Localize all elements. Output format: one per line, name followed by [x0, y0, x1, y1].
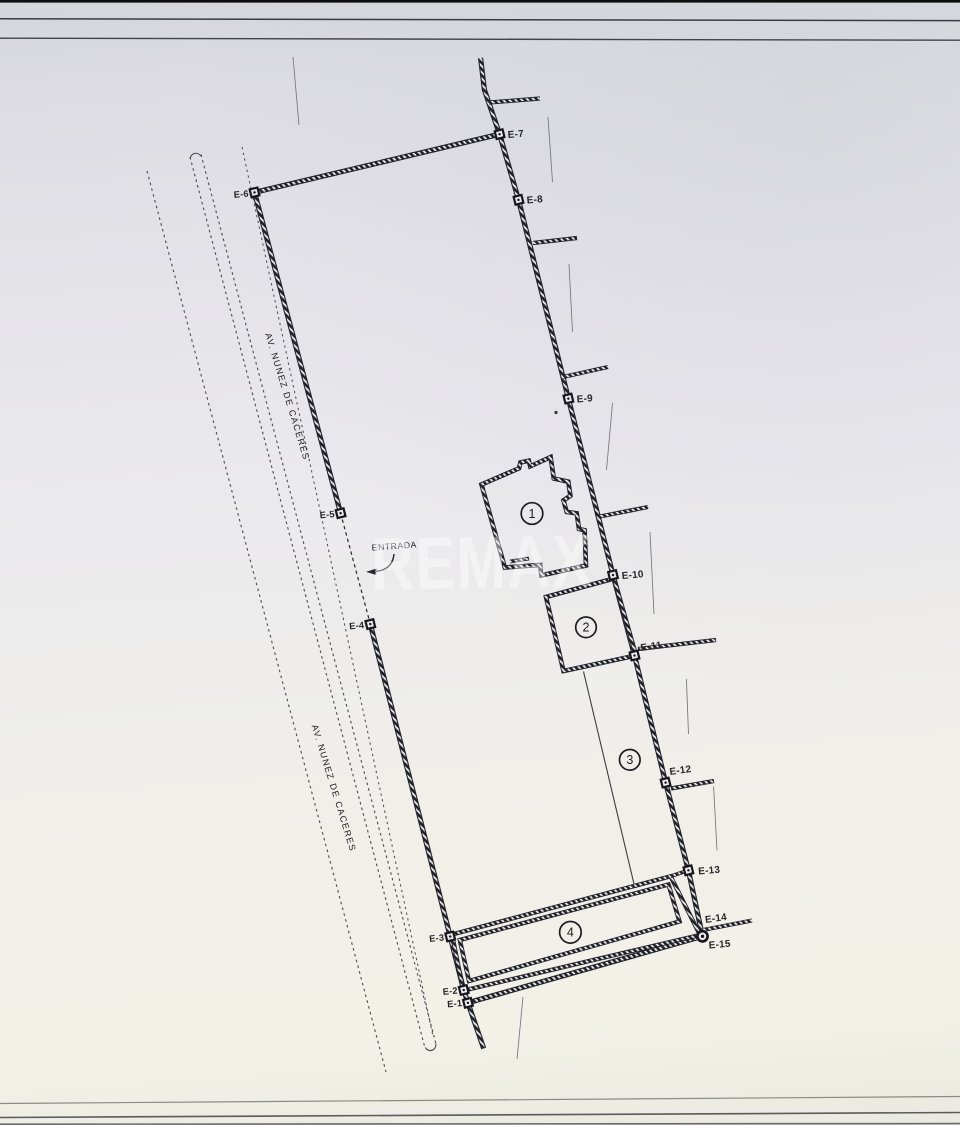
svg-text:3: 3	[626, 753, 633, 767]
svg-text:AV. NUNEZ DE CACERES: AV. NUNEZ DE CACERES	[263, 332, 311, 462]
svg-text:2: 2	[583, 621, 590, 635]
svg-text:REMAX: REMAX	[370, 519, 593, 606]
svg-text:E-9: E-9	[576, 393, 593, 405]
svg-text:E-6: E-6	[233, 189, 249, 200]
svg-text:E-5: E-5	[319, 509, 335, 520]
svg-text:E-7: E-7	[507, 129, 524, 141]
svg-text:E-12: E-12	[669, 764, 692, 778]
svg-text:E-2: E-2	[442, 986, 458, 997]
svg-text:E-10: E-10	[621, 569, 644, 582]
svg-text:E-15: E-15	[708, 939, 731, 952]
svg-text:1: 1	[529, 507, 536, 521]
svg-text:AV. NUNEZ DE CACERES: AV. NUNEZ DE CACERES	[310, 723, 358, 853]
svg-text:E-11: E-11	[640, 640, 663, 654]
svg-text:4: 4	[567, 926, 574, 940]
svg-text:E-13: E-13	[698, 865, 721, 878]
svg-text:E-4: E-4	[349, 620, 366, 631]
svg-text:E-3: E-3	[429, 933, 445, 944]
svg-text:E-8: E-8	[526, 194, 543, 206]
svg-text:E-1: E-1	[447, 998, 463, 1009]
